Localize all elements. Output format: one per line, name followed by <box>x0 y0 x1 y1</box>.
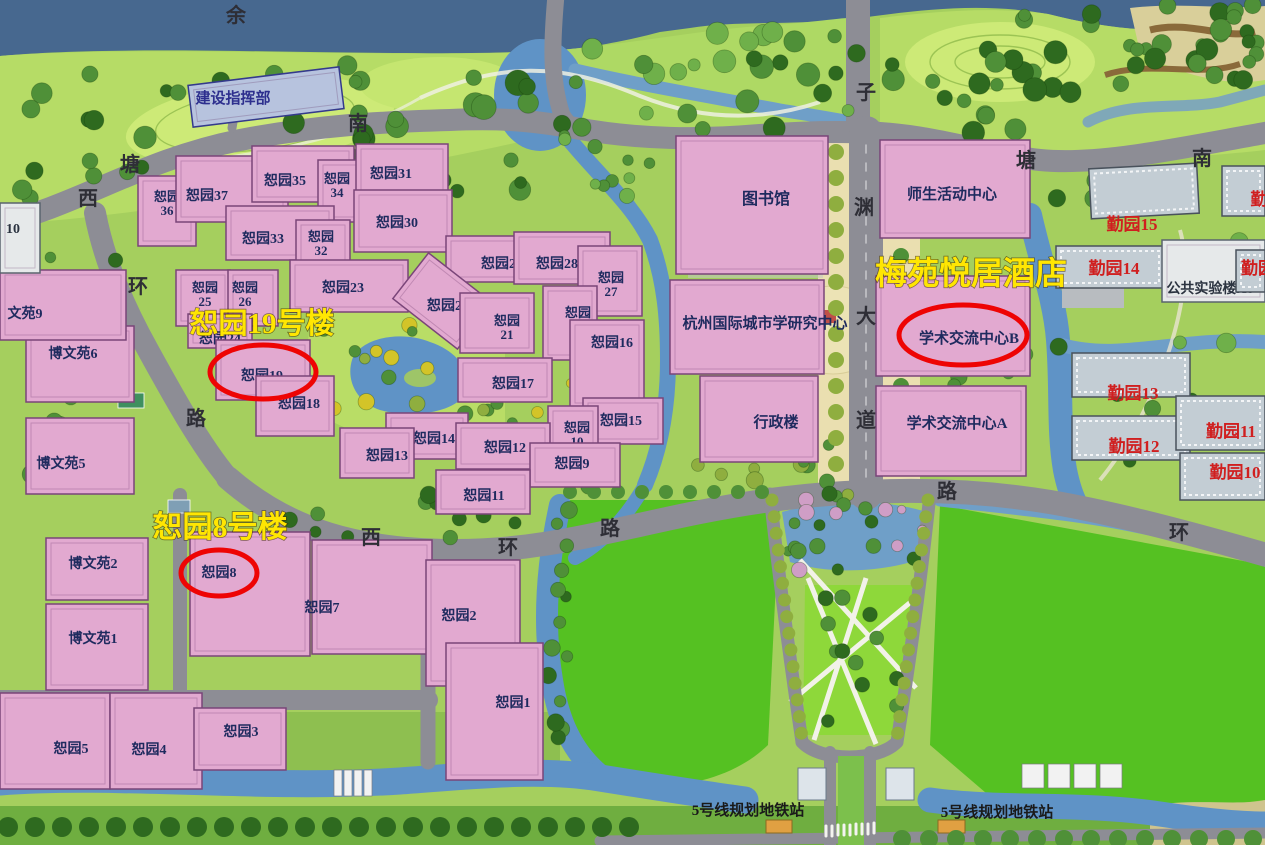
tree <box>897 505 906 514</box>
tree <box>985 51 1006 72</box>
tree <box>848 655 863 670</box>
tree <box>582 38 603 59</box>
tree <box>670 64 687 81</box>
building-label: 恕园11 <box>463 487 504 504</box>
tree <box>755 485 769 499</box>
tree <box>828 274 844 290</box>
building <box>110 693 202 789</box>
tree <box>639 106 653 120</box>
building-label: 恕园8 <box>202 564 237 581</box>
tree <box>795 727 808 740</box>
tree <box>644 158 655 169</box>
tree <box>241 817 261 837</box>
tree <box>588 139 602 153</box>
tree <box>902 643 915 656</box>
road-label: 环 <box>498 537 518 559</box>
gate-building <box>798 768 826 800</box>
building-label: 勤园11 <box>1206 422 1256 441</box>
tree <box>736 90 759 113</box>
tree <box>828 222 844 238</box>
tree <box>835 590 851 606</box>
tree <box>828 404 844 420</box>
tree <box>160 817 180 837</box>
tree <box>828 170 844 186</box>
tree <box>659 485 673 499</box>
tree <box>762 22 783 43</box>
building-label: 图书馆 <box>742 189 790 208</box>
tree <box>619 817 639 837</box>
building-label: 恕园12 <box>484 439 526 456</box>
tree <box>829 66 843 80</box>
tree <box>688 59 700 71</box>
campus-map: 恕园36恕园37恕园35恕园34恕园31恕园33恕园32恕园30恕园29恕园28… <box>0 0 1265 845</box>
building <box>312 540 432 654</box>
building-shape <box>446 643 543 780</box>
tree <box>922 494 935 507</box>
tree <box>384 350 399 365</box>
road-label: 大 <box>856 305 876 328</box>
tree <box>573 118 591 136</box>
tree <box>926 74 940 88</box>
road-label: 塘 <box>120 152 140 176</box>
tree <box>382 370 397 385</box>
tree <box>187 817 207 837</box>
metro-station-label: 5号线规划地铁站 <box>692 801 805 819</box>
tree <box>561 651 572 662</box>
tree <box>991 78 1004 91</box>
tree <box>892 540 904 552</box>
building-label: 杭州国际城市学研究中心 <box>682 314 847 332</box>
building-label: 恕园1 <box>496 694 531 711</box>
tree <box>623 155 634 166</box>
tree <box>532 407 544 419</box>
tree <box>635 485 649 499</box>
tree <box>518 93 539 114</box>
building-label: 建设指挥部 <box>195 89 270 107</box>
tree <box>12 180 32 200</box>
building-label: 恕园14 <box>413 430 455 447</box>
tree <box>338 56 357 75</box>
tree <box>430 817 450 837</box>
tree <box>1044 41 1067 64</box>
tree <box>45 252 56 263</box>
building-shape <box>46 604 148 690</box>
tree <box>1242 35 1255 48</box>
tree <box>1048 190 1065 207</box>
tree <box>746 51 762 67</box>
road-label: 南 <box>348 112 368 135</box>
road-label: 子 <box>856 82 876 104</box>
tree <box>891 727 904 740</box>
tree <box>863 607 878 622</box>
tree <box>678 104 697 123</box>
road-label: 西 <box>78 188 98 210</box>
tree <box>560 502 577 519</box>
tree <box>898 677 911 690</box>
building <box>446 643 543 780</box>
road-label: 环 <box>128 276 148 298</box>
building-label: 恕园23 <box>322 279 364 296</box>
tree <box>619 188 634 203</box>
tree <box>828 300 844 316</box>
tree <box>791 693 804 706</box>
building-label: 师生活动中心 <box>907 185 997 203</box>
tree <box>358 394 374 410</box>
building <box>0 203 40 273</box>
tree <box>915 544 928 557</box>
tree <box>822 486 837 501</box>
building-label: 博文苑6 <box>49 345 98 362</box>
tree <box>778 594 791 607</box>
building-label: 勤园10 <box>1210 463 1261 482</box>
tree <box>969 73 990 94</box>
tree <box>538 817 558 837</box>
tree <box>937 90 952 105</box>
building-label: 博文苑2 <box>69 555 118 572</box>
tree <box>695 121 710 136</box>
tree <box>349 817 369 837</box>
road-label: 路 <box>937 479 958 503</box>
tree <box>370 345 382 357</box>
tree <box>310 526 321 537</box>
tree <box>52 817 72 837</box>
tree <box>776 577 789 590</box>
tree <box>403 817 423 837</box>
tree <box>828 456 844 472</box>
tree <box>787 660 800 673</box>
road-label: 环 <box>1169 522 1189 544</box>
tree <box>322 817 342 837</box>
tree <box>590 179 600 189</box>
tree <box>796 63 819 86</box>
building <box>570 320 644 408</box>
tree <box>560 539 574 553</box>
building-label: 学术交流中心A <box>907 414 1008 432</box>
tree <box>792 562 808 578</box>
tree <box>784 643 797 656</box>
tree <box>554 616 566 628</box>
tree <box>784 31 805 52</box>
tree <box>551 730 566 745</box>
tree <box>828 144 844 160</box>
building-label: 恕园37 <box>186 187 228 204</box>
tree <box>1227 10 1242 25</box>
road-label: 路 <box>600 516 621 540</box>
building-label: 恕园30 <box>376 214 418 231</box>
tree <box>828 352 844 368</box>
tree <box>84 110 104 130</box>
tree <box>133 817 153 837</box>
tree <box>1145 48 1166 69</box>
tree <box>774 560 787 573</box>
tree <box>624 173 635 184</box>
tree <box>86 168 102 184</box>
tree <box>79 817 99 837</box>
tree <box>818 591 833 606</box>
building-label: 勤 <box>1251 190 1265 209</box>
tree <box>471 95 496 120</box>
building-label: 10 <box>6 222 20 237</box>
tree <box>706 22 728 44</box>
tree <box>770 527 783 540</box>
tree <box>740 32 759 51</box>
building <box>0 693 110 789</box>
building-label: 恕园9 <box>555 455 590 472</box>
campus-map-canvas: 恕园36恕园37恕园35恕园34恕园31恕园33恕园32恕园30恕园29恕园28… <box>0 0 1265 845</box>
building-shape <box>312 540 432 654</box>
tree <box>1217 333 1237 353</box>
tree <box>420 486 437 503</box>
tree <box>731 485 745 499</box>
road-label: 塘 <box>1016 148 1036 172</box>
metro-station-marker <box>766 820 792 833</box>
tree <box>855 677 870 692</box>
tree <box>359 353 370 364</box>
tree <box>885 58 899 72</box>
tree <box>835 644 850 659</box>
tree <box>25 817 45 837</box>
tree <box>772 544 785 557</box>
tree <box>484 817 504 837</box>
tree <box>443 530 458 545</box>
building-label: 勤园 <box>1241 259 1265 278</box>
tree <box>828 248 844 264</box>
tree <box>789 518 800 529</box>
building-label: 勤园15 <box>1107 215 1158 234</box>
tree <box>832 564 843 575</box>
tree <box>900 660 913 673</box>
tree <box>311 507 325 521</box>
tree <box>1127 57 1144 74</box>
building <box>0 270 126 340</box>
tree <box>828 430 844 446</box>
tree <box>170 85 186 101</box>
tree <box>683 485 697 499</box>
annotation-label: 梅苑悦居酒店 <box>875 255 1067 291</box>
tree <box>1243 55 1256 68</box>
building-label: 行政楼 <box>752 413 798 431</box>
tree <box>830 507 843 520</box>
road-label: 道 <box>856 408 876 432</box>
tree <box>478 404 490 416</box>
tree <box>544 640 561 657</box>
building-label: 博文苑5 <box>37 455 86 472</box>
tree <box>782 627 795 640</box>
building-label: 恕园33 <box>242 230 284 247</box>
tree <box>799 504 815 520</box>
tree <box>707 485 721 499</box>
building-label: 恕园13 <box>366 447 408 464</box>
tree <box>26 162 43 179</box>
tree <box>911 577 924 590</box>
tree <box>1113 76 1129 92</box>
tree <box>82 153 98 169</box>
tree <box>866 539 881 554</box>
tree <box>1023 78 1047 102</box>
tree <box>1082 5 1101 24</box>
tree <box>957 94 971 108</box>
tree <box>1234 71 1253 90</box>
tree <box>780 610 793 623</box>
building-label: 恕园3 <box>224 723 259 740</box>
tree <box>768 510 781 523</box>
building <box>46 604 148 690</box>
annotation-label: 恕园19号楼 <box>189 307 334 340</box>
building-shape <box>0 693 110 789</box>
building-shape <box>0 203 40 273</box>
tree <box>909 594 922 607</box>
tree <box>504 153 518 167</box>
tree <box>870 631 884 645</box>
building <box>1089 163 1199 219</box>
tree <box>376 817 396 837</box>
tree <box>551 518 563 530</box>
tree <box>295 817 315 837</box>
tree <box>592 817 612 837</box>
tree <box>82 66 98 82</box>
building-shape <box>26 418 134 494</box>
building-label: 勤园13 <box>1108 384 1159 403</box>
tree <box>789 677 802 690</box>
building-label: 勤园12 <box>1109 437 1160 456</box>
tree <box>828 196 844 212</box>
building-label: 博文苑1 <box>69 630 118 647</box>
tree <box>511 817 531 837</box>
tree <box>349 75 362 88</box>
tree <box>409 396 425 412</box>
tree <box>457 817 477 837</box>
tree <box>828 29 842 43</box>
tree <box>1018 9 1030 21</box>
road-label: 渊 <box>854 196 874 219</box>
building-label: 恕园15 <box>600 412 642 429</box>
tree <box>828 378 844 394</box>
tree <box>1244 0 1261 14</box>
building-label: 勤园14 <box>1089 259 1140 278</box>
tree <box>134 126 157 149</box>
tree <box>896 693 909 706</box>
tree <box>466 70 482 86</box>
tree <box>1131 43 1144 56</box>
building-label: 恕园28 <box>536 255 578 272</box>
tree <box>773 55 788 70</box>
tree <box>978 107 995 124</box>
tree <box>848 45 866 63</box>
tree <box>554 563 568 577</box>
tree <box>715 468 727 480</box>
annotation-label: 恕园8号楼 <box>153 511 288 544</box>
tree <box>551 582 566 597</box>
tree <box>814 84 832 102</box>
tree <box>793 710 806 723</box>
road-label: 南 <box>1192 147 1212 170</box>
tree <box>559 133 571 145</box>
tree <box>1005 119 1026 140</box>
tree <box>906 610 919 623</box>
building <box>26 418 134 494</box>
metro-station-label: 5号线规划地铁站 <box>941 803 1054 821</box>
tree <box>821 715 834 728</box>
tree <box>842 105 854 117</box>
building-label: 恕园35 <box>264 172 306 189</box>
tree <box>407 326 417 336</box>
tree <box>635 55 653 73</box>
building-shape <box>0 270 126 340</box>
building-shape <box>570 320 644 408</box>
building-label: 恕园4 <box>132 741 167 758</box>
tree <box>821 616 836 631</box>
tree <box>565 817 585 837</box>
tree <box>865 515 878 528</box>
tree <box>214 817 234 837</box>
tree <box>421 362 434 375</box>
tree <box>878 503 892 517</box>
building-label: 文苑9 <box>8 305 43 322</box>
building-shape <box>110 693 202 789</box>
building-label: 学术交流中心B <box>919 329 1019 347</box>
road-label: 西 <box>361 527 381 549</box>
tree <box>913 560 926 573</box>
tree <box>106 817 126 837</box>
gate-building <box>886 768 914 800</box>
tree <box>268 817 288 837</box>
tree <box>1159 0 1176 14</box>
road-label: 路 <box>186 406 207 430</box>
metro-station-marker <box>938 820 965 833</box>
road-label: 余 <box>225 3 247 27</box>
tree <box>1188 54 1206 72</box>
tree <box>349 345 361 357</box>
tree <box>1173 336 1186 349</box>
tree <box>553 115 570 132</box>
building-label: 恕园31 <box>370 165 412 182</box>
tree <box>893 710 906 723</box>
tree <box>509 517 521 529</box>
tree <box>519 78 536 95</box>
tree <box>713 50 736 73</box>
tree <box>859 502 873 516</box>
tree <box>1060 82 1081 103</box>
building-label: 恕园2 <box>442 607 477 624</box>
tree <box>388 111 404 127</box>
tree <box>569 76 582 89</box>
tree <box>1050 338 1067 355</box>
tree <box>791 543 807 559</box>
tree <box>904 627 917 640</box>
tree <box>919 510 932 523</box>
building-label: 恕园16 <box>591 334 633 351</box>
tree <box>108 253 122 267</box>
tree <box>547 714 564 731</box>
tree <box>1206 67 1223 84</box>
tree <box>814 520 825 531</box>
building-label: 恕园5 <box>54 740 89 757</box>
building-label: 恕园7 <box>305 599 340 616</box>
tree <box>515 177 527 189</box>
tree <box>810 538 826 554</box>
tree <box>917 527 930 540</box>
building-label: 恕园17 <box>492 375 534 392</box>
tree <box>554 696 566 708</box>
tree <box>22 100 40 118</box>
